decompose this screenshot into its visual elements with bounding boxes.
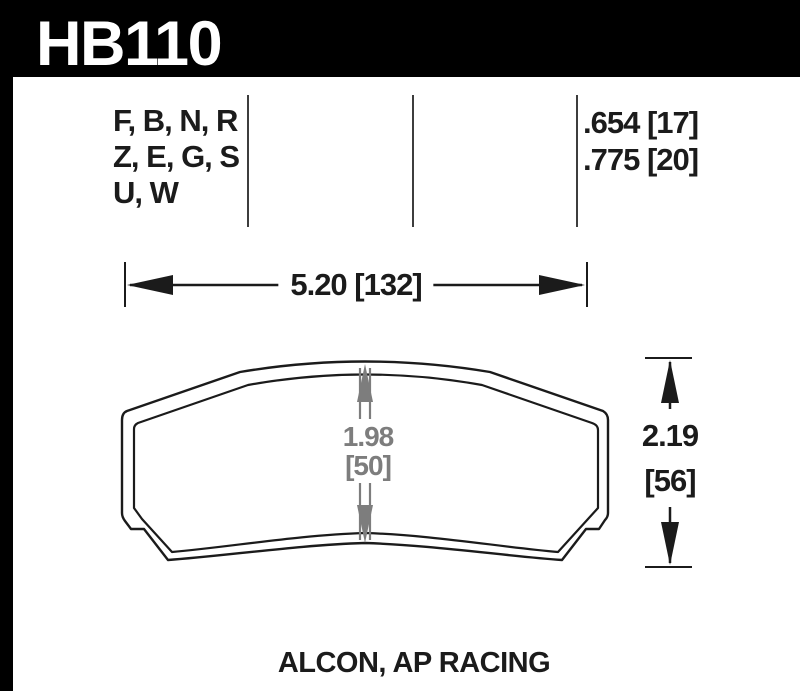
brake-pad-spec-page: HB110 F, B, N, R Z, E, G, S U, W .654 [1… [0, 0, 800, 691]
thickness-row: .775 [20] [583, 141, 698, 178]
header-banner: HB110 [0, 0, 800, 77]
table-divider [247, 95, 249, 227]
height-dim-inches: 2.19 [642, 413, 698, 458]
pad-height-inches: 1.98 [343, 422, 394, 451]
compound-row: Z, E, G, S [113, 139, 239, 175]
height-dim-millimeters: [56] [642, 458, 698, 503]
pad-height-label: 1.98 [50] [335, 419, 402, 483]
pad-height-arrowhead-top [357, 364, 373, 402]
pad-height-millimeters: [50] [343, 451, 394, 480]
height-dim-arrowhead-top [661, 360, 679, 403]
height-dim-arrowhead-bottom [661, 522, 679, 565]
compound-row: F, B, N, R [113, 103, 239, 139]
table-divider [576, 95, 578, 227]
height-dim-label: 2.19 [56] [635, 409, 705, 507]
pad-height-arrowhead-bottom [357, 505, 373, 543]
width-dim-arrowhead-left [127, 275, 173, 295]
thickness-row: .654 [17] [583, 104, 698, 141]
pad-thickness-values: .654 [17] .775 [20] [583, 104, 698, 178]
compound-codes: F, B, N, R Z, E, G, S U, W [113, 103, 239, 211]
width-dim-label: 5.20 [132] [278, 265, 433, 305]
width-dim-arrowhead-right [539, 275, 585, 295]
compound-row: U, W [113, 175, 239, 211]
table-divider [412, 95, 414, 227]
page-edge-bar [0, 0, 13, 691]
applications-label: ALCON, AP RACING [278, 647, 550, 680]
part-number: HB110 [36, 13, 221, 76]
